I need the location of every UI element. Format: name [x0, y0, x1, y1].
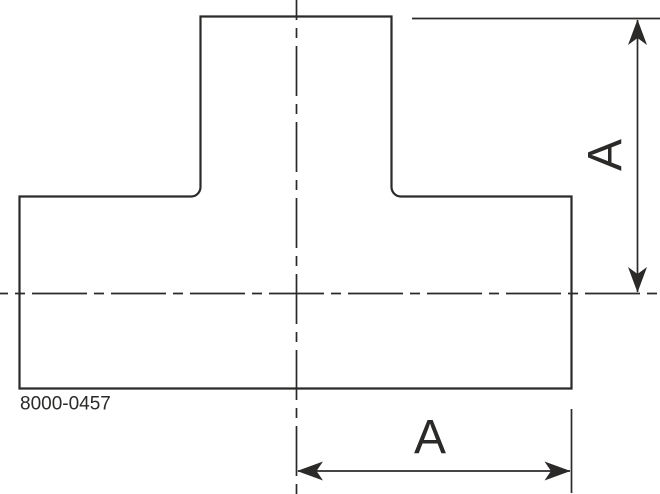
vertical-dimension-label: A — [579, 139, 632, 171]
drawing-sheet: A A 8000-0457 — [0, 0, 660, 494]
centerlines — [0, 0, 660, 494]
part-number-label: 8000-0457 — [20, 394, 111, 415]
horizontal-dimension-label: A — [414, 411, 446, 464]
tee-outline — [20, 17, 572, 389]
tee-technical-drawing: A A 8000-0457 — [0, 0, 660, 494]
